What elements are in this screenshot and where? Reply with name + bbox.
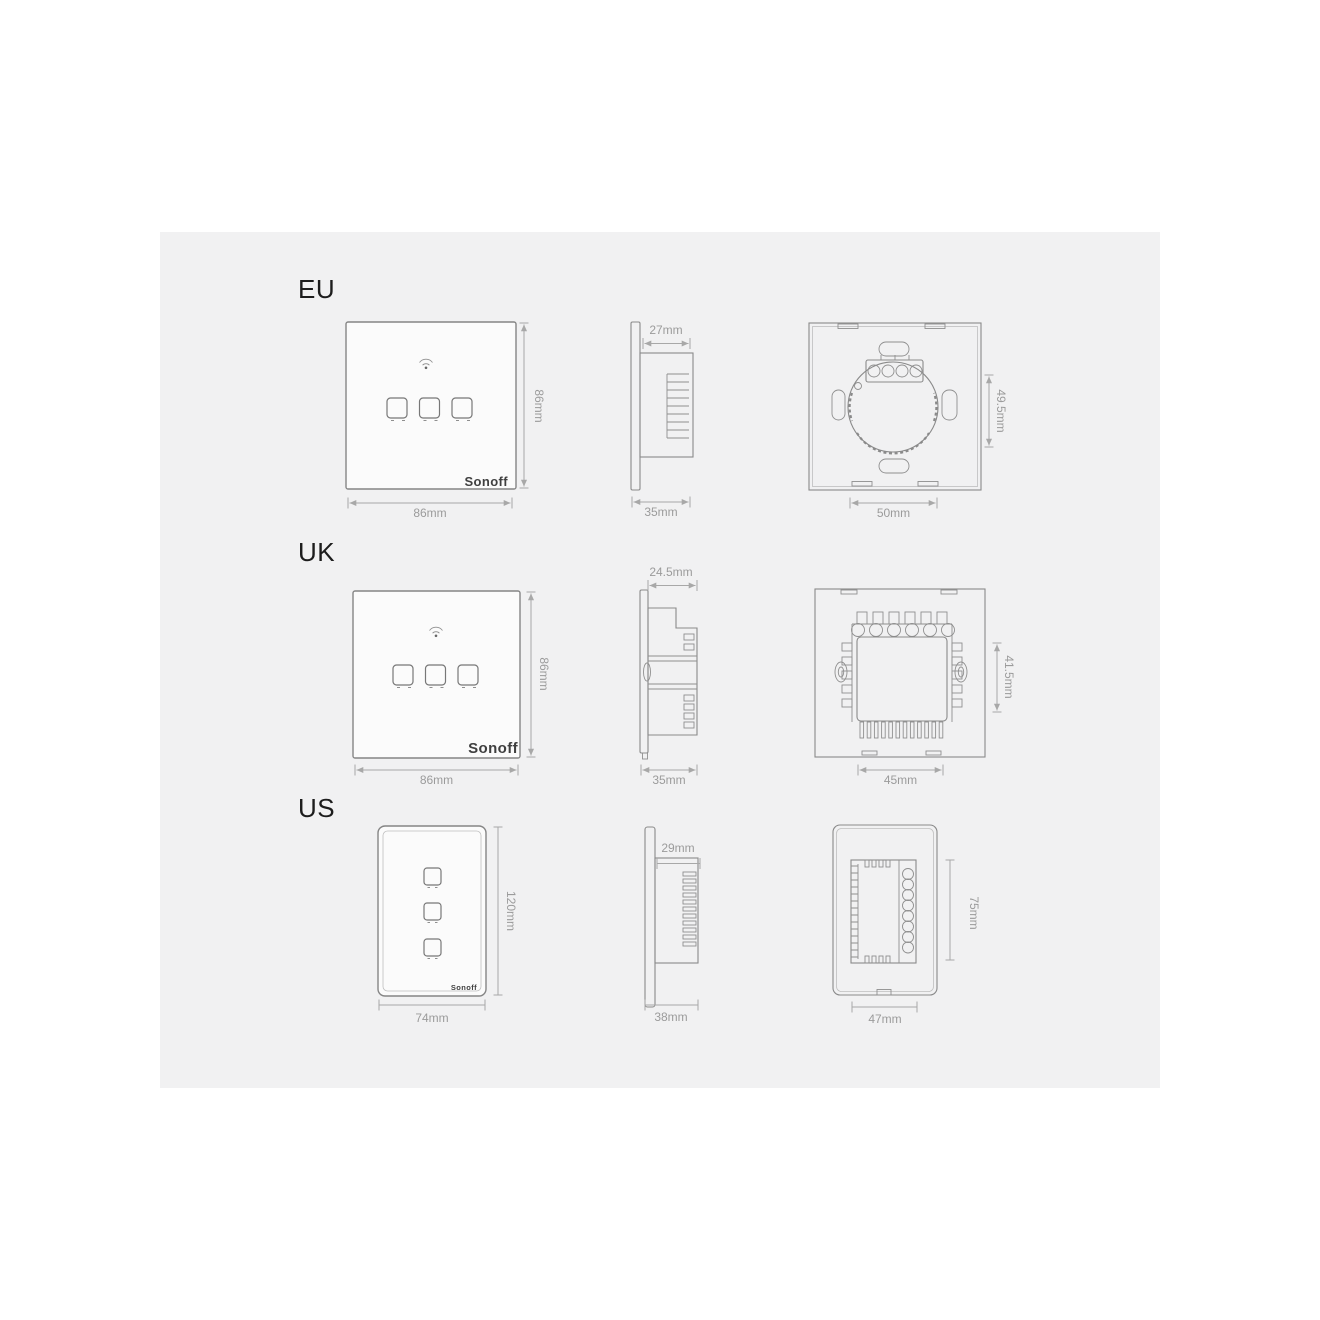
region-label-eu: EU xyxy=(298,274,335,304)
us-touch-buttons xyxy=(424,868,441,959)
uk-touch-buttons xyxy=(393,665,478,688)
uk-front-view: Sonoff xyxy=(353,591,520,758)
uk-back-width-dim: 45mm xyxy=(884,773,917,787)
uk-back-height-dim: 41.5mm xyxy=(1002,655,1016,698)
diagram-svg: EU Sonoff 86mm 86mm xyxy=(0,0,1320,1320)
us-depth-body-dim: 29mm xyxy=(661,841,694,855)
region-label-uk: UK xyxy=(298,537,335,567)
us-depth-total-dim: 38mm xyxy=(654,1010,687,1024)
brand-logo: Sonoff xyxy=(451,983,477,992)
uk-depth-total-dim: 35mm xyxy=(652,773,685,787)
us-front-view: Sonoff xyxy=(378,826,486,996)
eu-front-view: Sonoff xyxy=(346,322,516,489)
eu-touch-buttons xyxy=(387,398,472,421)
product-dimensions-figure: EU Sonoff 86mm 86mm xyxy=(0,0,1320,1320)
us-height-dim: 120mm xyxy=(504,891,518,931)
us-width-dim: 74mm xyxy=(415,1011,448,1025)
uk-width-dim: 86mm xyxy=(420,773,453,787)
eu-back-width-dim: 50mm xyxy=(877,506,910,520)
brand-logo: Sonoff xyxy=(468,740,518,757)
eu-width-dim: 86mm xyxy=(413,506,446,520)
eu-depth-total-dim: 35mm xyxy=(644,505,677,519)
us-back-height-dim: 75mm xyxy=(967,896,981,929)
uk-depth-body-dim: 24.5mm xyxy=(649,565,692,579)
us-back-width-dim: 47mm xyxy=(868,1012,901,1026)
brand-logo: Sonoff xyxy=(464,474,508,489)
region-label-us: US xyxy=(298,793,335,823)
uk-height-dim: 86mm xyxy=(537,657,551,690)
eu-back-height-dim: 49.5mm xyxy=(994,389,1008,432)
eu-depth-body-dim: 27mm xyxy=(649,323,682,337)
eu-height-dim: 86mm xyxy=(532,389,546,422)
